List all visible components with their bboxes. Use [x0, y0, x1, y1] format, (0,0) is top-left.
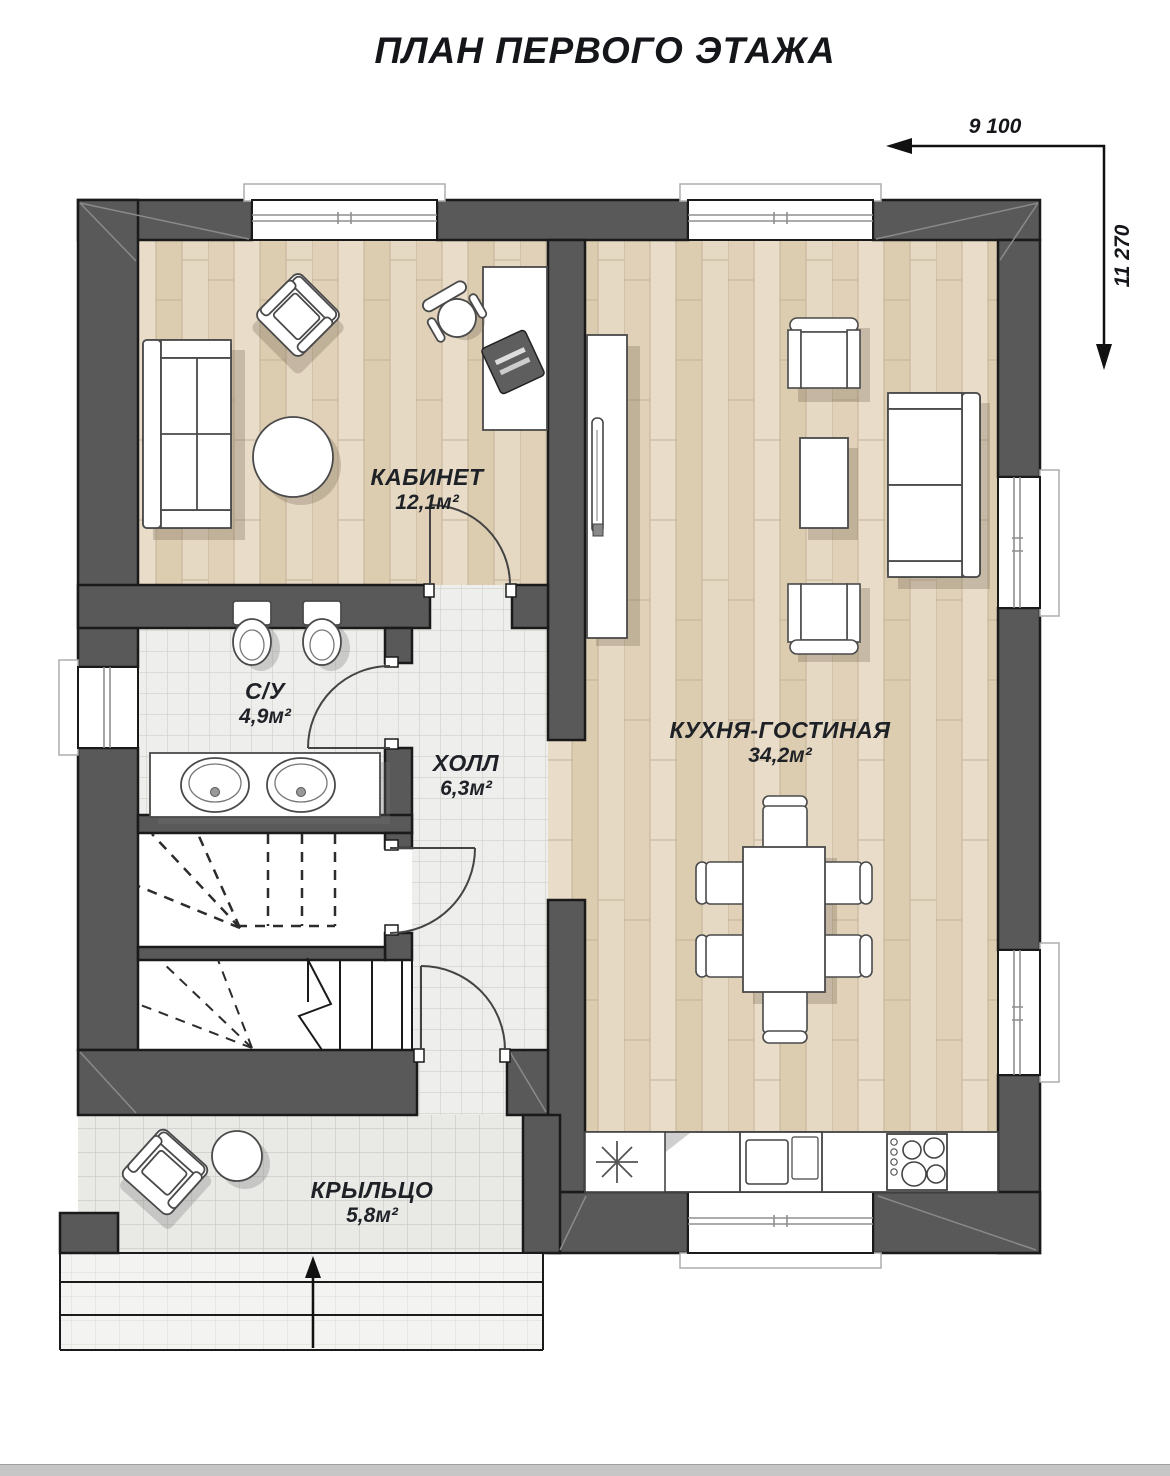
coffee-table: [800, 438, 848, 528]
kitchen-sink-unit: [740, 1132, 822, 1192]
vanity-counter: [150, 753, 380, 817]
hall-label: ХОЛЛ 6,3м²: [433, 750, 499, 802]
window-living-right-lower: [998, 943, 1059, 1082]
stairs-floor: [138, 815, 412, 1050]
dim-arrow-left: [886, 138, 912, 154]
stove: [887, 1134, 947, 1190]
floor-plan-canvas: [0, 0, 1170, 1476]
sink-2: [267, 758, 335, 812]
window-kitchen-bottom: [680, 1192, 881, 1268]
dim-arrow-down: [1096, 344, 1112, 370]
bathroom-area: 4,9м²: [239, 705, 291, 730]
dining-chair-bottom: [763, 989, 807, 1043]
dimension-height-label: 11 270: [1111, 225, 1135, 288]
office-label: КАБИНЕТ 12,1м²: [370, 464, 483, 516]
armchair-bottom: [788, 584, 860, 654]
window-office-top: [244, 184, 445, 240]
office-sofa: [143, 340, 231, 528]
wall-center-upper: [548, 240, 585, 740]
window-living-top: [680, 184, 881, 240]
porch-label: КРЫЛЬЦО 5,8м²: [311, 1177, 434, 1229]
porch-area: 5,8м²: [311, 1204, 434, 1229]
corner-cabinet-star-icon: [596, 1141, 638, 1183]
toilet-2: [303, 601, 341, 665]
window-living-right-upper: [998, 470, 1059, 616]
dining-chair-right-2: [820, 935, 872, 977]
dining-chair-left-1: [696, 862, 748, 904]
sink-1: [181, 758, 249, 812]
dining-chair-top: [763, 796, 807, 850]
dining-chair-left-2: [696, 935, 748, 977]
kitchen-counter: [585, 1132, 998, 1192]
toilet-1: [233, 601, 271, 665]
window-bathroom-left: [59, 660, 138, 755]
porch-steps: [60, 1253, 543, 1350]
porch-name: КРЫЛЬЦО: [311, 1177, 434, 1204]
hall-name: ХОЛЛ: [433, 750, 499, 777]
wall-stairs-mid: [138, 947, 385, 960]
wall-top-mid: [437, 200, 688, 240]
porch-pillar: [60, 1213, 118, 1253]
bottom-scrollbar-strip: [0, 1464, 1170, 1476]
kitchen-living-label: КУХНЯ-ГОСТИНАЯ 34,2м²: [669, 717, 890, 769]
living-hall-threshold: [548, 740, 585, 900]
tv-remote: [593, 524, 603, 536]
porch-side-table: [212, 1131, 262, 1181]
kitchen-living-name: КУХНЯ-ГОСТИНАЯ: [669, 717, 890, 744]
office-area: 12,1м²: [370, 491, 483, 516]
wall-right-1: [998, 240, 1040, 477]
wall-office-bottom-stub: [512, 585, 548, 628]
dining-chair-right-1: [820, 862, 872, 904]
bathroom-label: С/У 4,9м²: [239, 678, 291, 730]
armchair-top: [788, 318, 860, 388]
hall-area: 6,3м²: [433, 777, 499, 802]
wall-left-lower: [78, 748, 138, 1050]
office-name: КАБИНЕТ: [370, 464, 483, 491]
kitchen-living-area: 34,2м²: [669, 744, 890, 769]
wall-porch-right: [523, 1115, 560, 1253]
wall-right-2: [998, 608, 1040, 950]
wall-bottom-left: [548, 1192, 688, 1253]
floor-plan-screenshot: ПЛАН ПЕРВОГО ЭТАЖА: [0, 0, 1170, 1476]
dining-table: [743, 847, 825, 992]
office-round-table: [253, 417, 333, 497]
bathroom-name: С/У: [239, 678, 291, 705]
dimension-width-label: 9 100: [969, 115, 1022, 139]
sofa: [888, 393, 980, 577]
wall-stairs-right-b: [385, 933, 412, 960]
